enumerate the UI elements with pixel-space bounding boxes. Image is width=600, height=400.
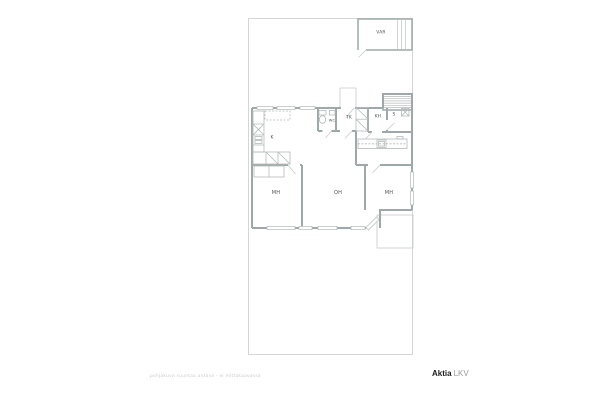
brand-suffix: LKV <box>454 369 469 378</box>
house-walls <box>252 94 412 228</box>
room-label-bathroom: KH <box>375 115 382 120</box>
room-label-toilet: WC <box>329 118 336 123</box>
brand-name: Aktia <box>432 369 452 378</box>
room-label-bedroom-right: MH <box>385 190 393 196</box>
room-label-entry: TK <box>346 116 352 121</box>
utility-counter <box>358 137 407 149</box>
room-label-living-room: OH <box>334 190 342 196</box>
brand-logo: AktiaLKV <box>432 369 469 378</box>
entrance-porch <box>340 88 356 108</box>
room-label-storage: VAR <box>376 31 385 36</box>
door-swings <box>288 108 395 230</box>
room-label-kitchen: K <box>270 136 273 141</box>
room-label-bedroom-left: MH <box>272 190 280 196</box>
disclaimer-text: pohjakuva suuntaa antava - ei mittakaava… <box>150 374 261 379</box>
plot-boundary <box>249 19 413 355</box>
room-label-sauna: S <box>393 113 396 118</box>
floorplan-page: VAR K WC TK KH S MH OH MH pohjakuva suun… <box>0 0 600 400</box>
stairs <box>383 94 412 110</box>
floorplan-drawing <box>0 0 600 400</box>
hall-closets <box>356 108 368 132</box>
kitchen-fixtures <box>253 111 290 177</box>
terrace <box>377 215 413 248</box>
storage-room <box>358 19 412 58</box>
